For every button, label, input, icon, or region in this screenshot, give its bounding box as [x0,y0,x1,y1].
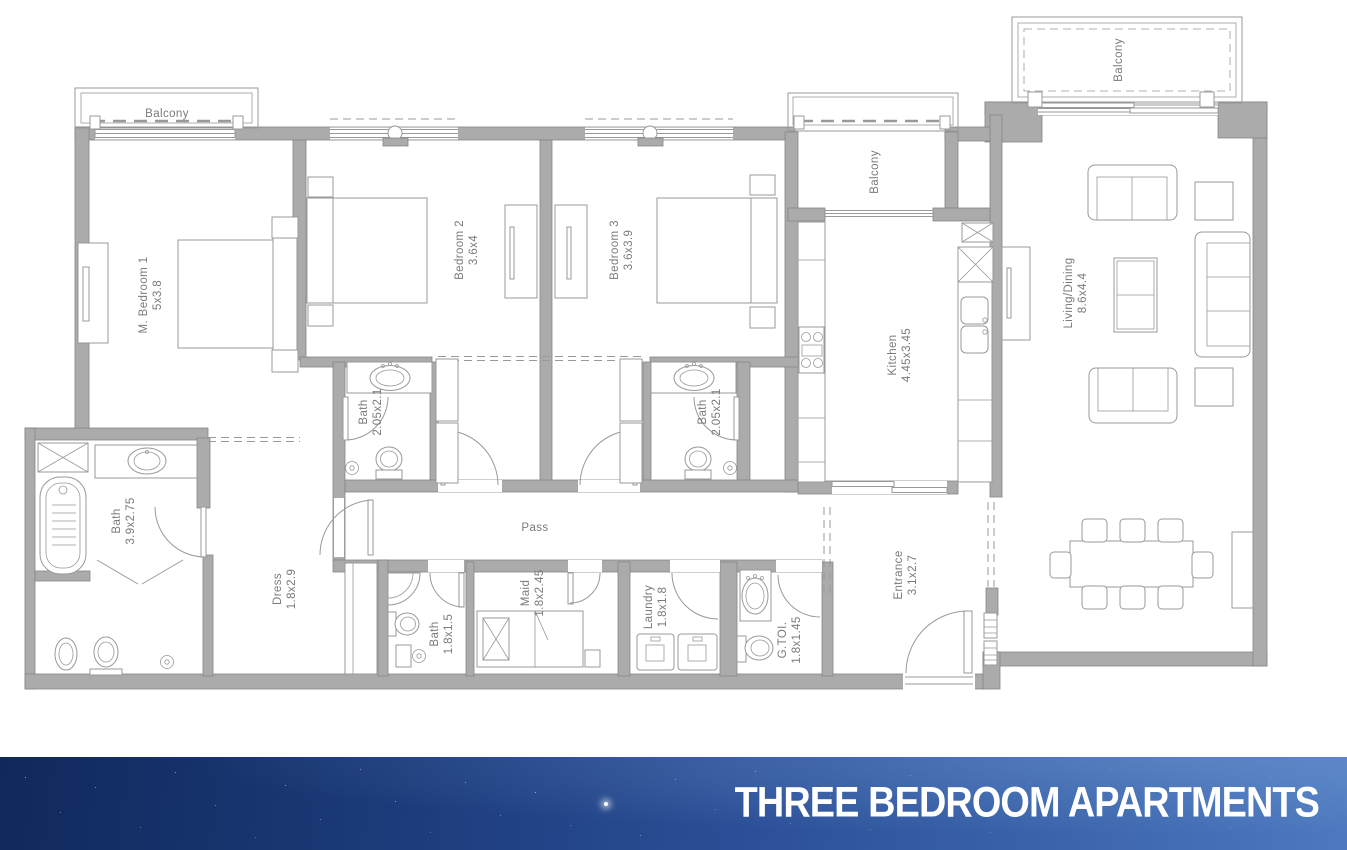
label-bedroom2-dims: 3.6x4 [468,235,480,265]
floor-drain [346,462,359,475]
label-maid: Maid [520,580,532,607]
label-gtoi-dims: 1.8x1.45 [791,616,803,663]
label-dress: Dress [272,573,284,605]
furniture-living [1002,165,1250,423]
label-m-bedroom1: M. Bedroom 1 [138,256,150,333]
label-pass: Pass [521,522,548,534]
label-balcony-living: Balcony [1113,38,1125,82]
side-table [1195,368,1233,406]
label-bath-master-dims: 3.9x2.75 [125,497,137,544]
side-table [1195,182,1233,220]
label-bath-master: Bath [111,508,123,533]
fixtures-bath3 [651,362,737,479]
fixtures-master-bath [38,443,197,675]
label-balcony-master: Balcony [145,108,189,120]
label-living-dining-dims: 8.6x4.4 [1077,273,1089,314]
chair [1050,552,1071,578]
label-bath-maid-dims: 1.8x1.5 [443,614,455,655]
label-entrance-dims: 3.1x2.7 [907,555,919,596]
floor-drain [413,650,426,663]
label-gtoi: G.TOI. [777,622,789,659]
label-laundry: Laundry [643,585,655,629]
washing-machine [678,634,717,670]
floor-drain [161,656,174,669]
furniture-laundry [637,634,717,670]
sliding-door-leaf [1130,108,1218,113]
label-dress-dims: 1.8x2.9 [286,569,298,610]
tv-panel [1007,268,1011,318]
door-laundry [672,573,718,619]
sliding-door-leaf [832,482,894,487]
chair [1192,552,1213,578]
floor-plan-page: Balcony M. Bedroom 1 5x3.8 Bedroom 2 3.6… [0,0,1347,850]
door-dress [320,500,371,555]
furniture-maid [477,611,600,667]
label-bath2-dims: 2.05x2.1 [372,388,384,435]
label-living-dining: Living/Dining [1063,257,1075,328]
chair [1120,586,1145,609]
double-door-wc [97,560,183,584]
shoe-cabinet [984,613,997,638]
label-bedroom2: Bedroom 2 [454,220,466,280]
page-title: THREE BEDROOM APARTMENTS [735,778,1319,827]
bathtub [40,477,86,574]
tv-panel [510,227,514,279]
label-bath2: Bath [358,399,370,424]
chair [1082,586,1107,609]
furniture-entrance [984,613,997,665]
floor-drain [724,462,737,475]
label-bath3-dims: 2.05x2.1 [711,388,723,435]
label-kitchen-dims: 4.45x3.45 [901,328,913,382]
tv-panel [83,267,89,321]
door-maid [570,573,600,603]
furniture-dining [1050,519,1253,609]
label-bath-maid: Bath [429,621,441,646]
dress-wardrobe [345,563,377,674]
balcony-living-rail [1012,17,1242,107]
label-kitchen: Kitchen [887,334,899,375]
label-laundry-dims: 1.8x1.8 [657,587,669,628]
floor-plan-drawing: Balcony M. Bedroom 1 5x3.8 Bedroom 2 3.6… [0,0,1347,757]
label-balcony-middle: Balcony [869,150,881,194]
chair [1158,519,1183,542]
footer-banner: THREE BEDROOM APARTMENTS [0,757,1347,850]
washing-machine [637,634,674,670]
sofa-2seat [1088,165,1177,220]
bright-star [604,802,608,806]
chair [1158,586,1183,609]
door-gtoi [778,575,820,617]
label-maid-dims: 1.8x2.45 [534,569,546,616]
sideboard [1232,532,1253,608]
furniture-bedroom3 [555,175,777,328]
kitchen-window [825,211,933,217]
label-entrance: Entrance [893,550,905,599]
sliding-door-leaf [892,488,947,493]
fixtures-bath-maid [388,573,426,667]
shoe-cabinet [984,641,997,665]
furniture-bedroom2 [307,177,537,326]
label-bedroom3-dims: 3.6x3.9 [623,230,635,271]
tv-panel [567,227,571,279]
balcony-middle-rail [788,93,958,131]
sink [961,297,988,324]
side-table [585,650,600,667]
corner-shower [388,573,420,605]
dining-table [1070,541,1193,587]
furniture-m-bedroom1 [78,217,298,372]
door-entrance [906,611,968,673]
star-field [0,757,1,758]
chair [1120,519,1145,542]
fixtures-gtoi [737,570,773,662]
label-bedroom3: Bedroom 3 [609,220,621,280]
label-bath3: Bath [697,399,709,424]
chair [1082,519,1107,542]
label-m-bedroom1-dims: 5x3.8 [152,280,164,310]
sofa-3seat [1195,232,1250,357]
pedestal-sink [396,645,411,667]
door-master-bath [155,507,205,557]
tv-console [1002,247,1030,340]
